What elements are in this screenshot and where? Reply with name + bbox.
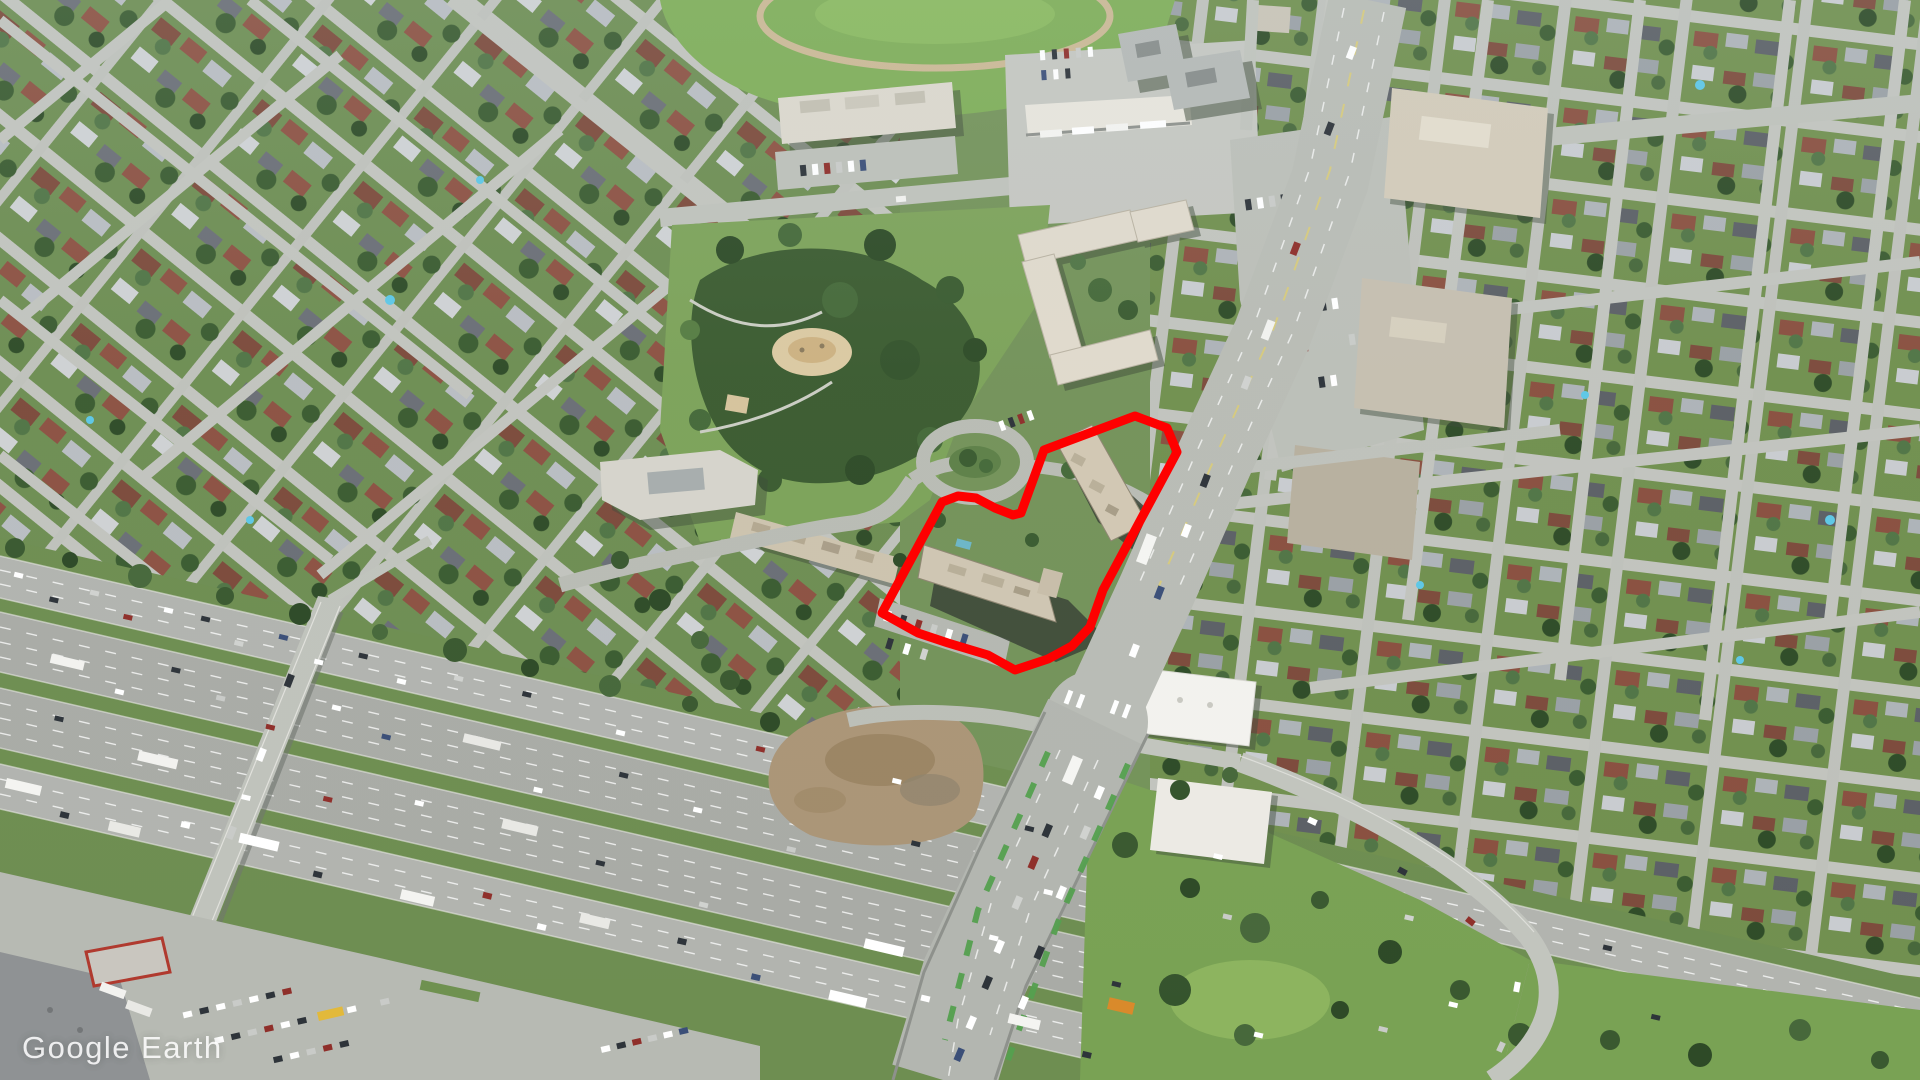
google-earth-canvas[interactable]: Google Earth (0, 0, 1920, 1080)
atmospheric-haze (0, 0, 1920, 1080)
google-earth-watermark: Google Earth (22, 1030, 223, 1066)
satellite-imagery (0, 0, 1920, 1080)
